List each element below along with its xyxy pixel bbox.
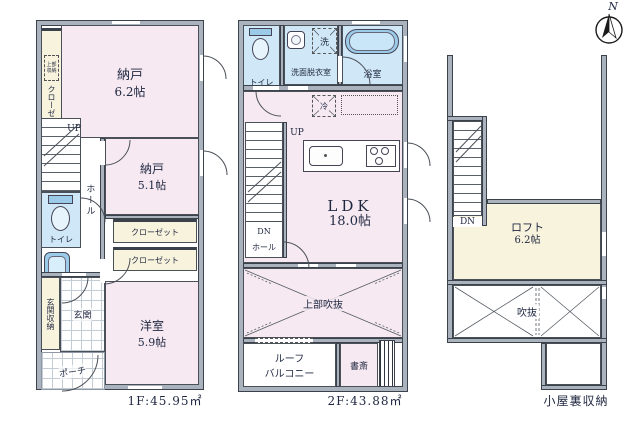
- interior-wall: [541, 385, 607, 390]
- loft-label: ロフト: [470, 222, 585, 235]
- door-opening: [62, 273, 86, 276]
- window: [602, 287, 606, 299]
- entrance-label: 玄関: [73, 308, 91, 321]
- burner-icon: [370, 147, 378, 155]
- study: 書斎: [340, 343, 378, 387]
- window: [352, 21, 380, 24]
- hall-label-2f: ホール: [246, 243, 282, 252]
- door-opening: [288, 86, 308, 90]
- floor-plan-page: 納戸 6.2帖 上部収納 クローゼット UP ホール トイレ 納戸 5.1帖 ク…: [0, 0, 640, 425]
- room-label: 納戸: [117, 64, 143, 83]
- hall-label-1f: ホール: [84, 172, 94, 228]
- sink-drain-icon: [324, 154, 327, 157]
- closet-2: クローゼット: [113, 247, 197, 271]
- closet-1: クローゼット: [113, 219, 197, 243]
- toilet-bowl-icon: [252, 38, 269, 60]
- bathroom-label: 浴室: [363, 67, 381, 80]
- shelf-unit: [379, 340, 395, 387]
- balcony-label-1: ルーフ: [275, 350, 304, 365]
- interior-wall: [482, 116, 487, 226]
- room-label: 洋室: [140, 317, 164, 334]
- study-label: 書斎: [350, 359, 368, 372]
- void-area-attic: 吹抜: [453, 285, 601, 338]
- washroom-label: 洗面脱衣室: [291, 67, 331, 78]
- interior-wall: [487, 199, 601, 204]
- fridge-space: 冷: [312, 95, 336, 117]
- closet-label: クローゼット: [131, 255, 179, 266]
- compass-north-label: N: [606, 1, 620, 14]
- window: [112, 21, 140, 24]
- room-yoshitsu: 洋室 5.9帖: [105, 281, 199, 385]
- void-above-label: 上部吹抜: [301, 296, 345, 311]
- entrance-storage: 玄関収納: [41, 277, 60, 350]
- window: [404, 142, 407, 168]
- window: [404, 36, 407, 62]
- burner-icon: [381, 147, 389, 155]
- stairs-dn-label-2f: DN: [249, 227, 279, 236]
- window: [602, 232, 606, 256]
- washer-label: 洗: [319, 35, 330, 48]
- floor-title-1f: 1F:45.95㎡: [115, 395, 215, 409]
- door-opening: [100, 259, 105, 283]
- ldk-label: LDK: [295, 198, 405, 215]
- entrance: 玄関: [60, 277, 105, 352]
- toilet-bowl-icon: [51, 206, 70, 231]
- toilet-tank-icon: [48, 195, 73, 204]
- floor-title-2f: 2F:43.88㎡: [315, 395, 415, 409]
- door-opening: [253, 86, 279, 90]
- stairs-up-label-2f: UP: [285, 128, 309, 138]
- stairs-attic: [453, 121, 482, 216]
- door-opening: [100, 141, 105, 165]
- loft-size: 6.2帖: [470, 235, 585, 247]
- toilet-tank-icon: [249, 28, 272, 36]
- room-size: 5.9帖: [138, 334, 167, 350]
- window: [200, 150, 203, 176]
- window: [128, 386, 162, 389]
- porch-label: ポーチ: [59, 363, 88, 380]
- closet-label: クローゼット: [131, 227, 179, 238]
- washer-space: 洗: [312, 28, 337, 54]
- porch: ポーチ: [41, 352, 105, 390]
- stairs-up-label: UP: [62, 124, 86, 134]
- burner-icon: [375, 157, 383, 165]
- washbasin-bowl-icon: [291, 35, 301, 45]
- ldk-label-group: LDK 18.0帖: [295, 198, 405, 230]
- loft-label-group: ロフト 6.2帖: [470, 222, 585, 246]
- room-nando-5-1: 納戸 5.1帖: [105, 138, 199, 215]
- door-opening: [336, 264, 356, 267]
- ldk-size: 18.0帖: [295, 215, 405, 230]
- room-size: 5.1帖: [138, 177, 167, 193]
- floor-title-attic: 小屋裏収納: [535, 395, 617, 409]
- toilet-label-1f: トイレ: [49, 234, 73, 245]
- balcony-label-2: バルコニー: [265, 365, 315, 380]
- stairs-2f: [245, 122, 283, 222]
- upper-storage-note: 上部収納: [44, 55, 59, 81]
- bathtub-inner-icon: [349, 32, 395, 51]
- room-label: 納戸: [140, 160, 164, 177]
- stairs-dn-label-attic: DN: [453, 217, 482, 227]
- window: [200, 55, 203, 81]
- fridge-label: 冷: [319, 101, 329, 112]
- room-size: 6.2帖: [114, 83, 145, 100]
- cupboard-space: [341, 95, 398, 115]
- window: [404, 198, 407, 224]
- compass-icon: [596, 14, 622, 43]
- attic-storage-room: [546, 343, 601, 385]
- room-nando-6-2: 納戸 6.2帖: [61, 25, 199, 138]
- entrance-storage-label: 玄関収納: [45, 298, 56, 330]
- void-above-area: 上部吹抜: [243, 268, 403, 338]
- void-label-attic: 吹抜: [515, 304, 539, 319]
- interior-wall: [283, 122, 287, 258]
- roof-balcony: ルーフ バルコニー: [243, 343, 336, 387]
- door-opening: [298, 264, 318, 267]
